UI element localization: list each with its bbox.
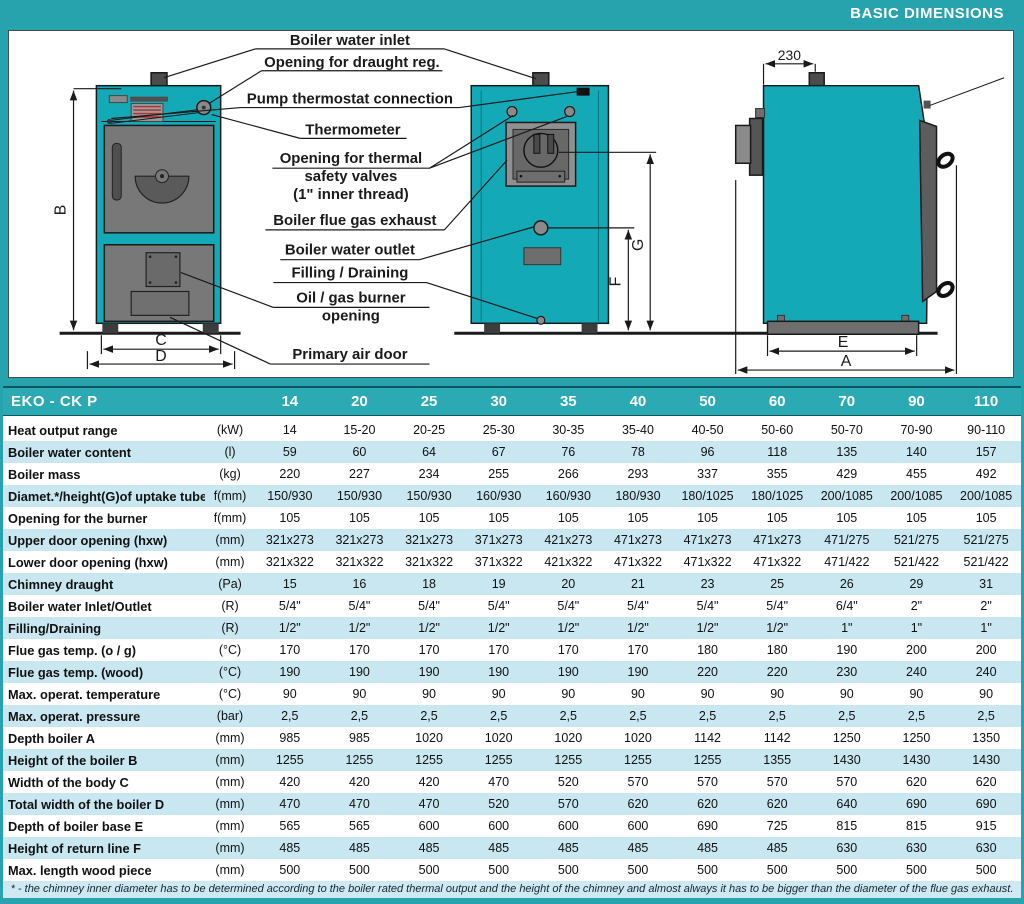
model-column-14: 14	[255, 387, 325, 416]
cell-value: 2"	[951, 595, 1021, 617]
cell-value: 1250	[882, 727, 952, 749]
front-door-edge	[920, 120, 937, 301]
cell-value: 321x322	[325, 551, 395, 573]
cell-value: 2,5	[951, 705, 1021, 727]
cell-value: 1350	[951, 727, 1021, 749]
dim-depth-A: A	[841, 353, 852, 370]
cell-value: 90-110	[951, 419, 1021, 441]
cell-value: 5/4"	[325, 595, 395, 617]
cell-value: 29	[882, 573, 952, 595]
boiler-water-outlet	[534, 221, 548, 235]
cell-value: 240	[882, 661, 952, 683]
cell-value: 59	[255, 441, 325, 463]
cell-value: 485	[255, 837, 325, 859]
model-column-60: 60	[742, 387, 812, 416]
cell-value: 1430	[951, 749, 1021, 771]
chimney-stub	[151, 73, 167, 86]
cell-value: 600	[534, 815, 604, 837]
model-name: EKO - CK P	[3, 387, 255, 416]
cell-value: 234	[394, 463, 464, 485]
cell-value: 620	[742, 793, 812, 815]
cell-value: 293	[603, 463, 673, 485]
cell-value: 190	[255, 661, 325, 683]
cell-value: 2,5	[673, 705, 743, 727]
cell-value: 1430	[812, 749, 882, 771]
spec-row: Lower door opening (hxw)(mm)321x322321x3…	[3, 551, 1021, 573]
cell-value: 180	[742, 639, 812, 661]
spec-row: Height of the boiler B(mm)12551255125512…	[3, 749, 1021, 771]
cell-value: 15-20	[325, 419, 395, 441]
flue-pipe-end	[736, 125, 751, 163]
spec-row: Filling/Draining(R)1/2"1/2"1/2"1/2"1/2"1…	[3, 617, 1021, 639]
cell-value: 18	[394, 573, 464, 595]
cell-value: 15	[255, 573, 325, 595]
spec-row: Depth boiler A(mm)9859851020102010201020…	[3, 727, 1021, 749]
page-title: BASIC DIMENSIONS	[850, 5, 1004, 22]
cell-value: 1430	[882, 749, 952, 771]
chimney-stub	[533, 73, 549, 86]
cell-value: 6/4"	[812, 595, 882, 617]
row-unit: (mm)	[205, 771, 255, 793]
cell-value: 25	[742, 573, 812, 595]
cell-value: 421x322	[534, 551, 604, 573]
spec-row: Height of return line F(mm)4854854854854…	[3, 837, 1021, 859]
row-unit: f(mm)	[205, 507, 255, 529]
cell-value: 485	[742, 837, 812, 859]
cell-value: 485	[464, 837, 534, 859]
cell-value: 50-60	[742, 419, 812, 441]
cell-value: 2,5	[325, 705, 395, 727]
cell-value: 1/2"	[325, 617, 395, 639]
row-unit: (mm)	[205, 793, 255, 815]
cell-value: 471x322	[673, 551, 743, 573]
row-unit: (°C)	[205, 661, 255, 683]
model-column-110: 110	[951, 387, 1021, 416]
cell-value: 521/422	[951, 551, 1021, 573]
cell-value: 521/275	[882, 529, 952, 551]
cell-value: 105	[534, 507, 604, 529]
row-label: Opening for the burner	[3, 507, 205, 529]
row-label: Depth boiler A	[3, 727, 205, 749]
cell-value: 485	[325, 837, 395, 859]
cell-value: 1255	[464, 749, 534, 771]
cell-value: 35-40	[603, 419, 673, 441]
cell-value: 620	[951, 771, 1021, 793]
cell-value: 21	[603, 573, 673, 595]
cell-value: 1/2"	[673, 617, 743, 639]
label-thermometer: Thermometer	[305, 122, 400, 138]
cell-value: 190	[534, 661, 604, 683]
spec-row: Opening for the burnerf(mm)1051051051051…	[3, 507, 1021, 529]
row-label: Upper door opening (hxw)	[3, 529, 205, 551]
cell-value: 725	[742, 815, 812, 837]
cell-value: 40-50	[673, 419, 743, 441]
cell-value: 1"	[882, 617, 952, 639]
cell-value: 420	[394, 771, 464, 793]
cell-value: 160/930	[534, 485, 604, 507]
cell-value: 230	[812, 661, 882, 683]
cell-value: 180	[673, 639, 743, 661]
row-unit: (bar)	[205, 705, 255, 727]
cell-value: 90	[534, 683, 604, 705]
spec-row: Depth of boiler base E(mm)56556560060060…	[3, 815, 1021, 837]
cell-value: 471/275	[812, 529, 882, 551]
cell-value: 90	[812, 683, 882, 705]
cell-value: 25-30	[464, 419, 534, 441]
cell-value: 2,5	[464, 705, 534, 727]
row-unit: (mm)	[205, 815, 255, 837]
cell-value: 421x273	[534, 529, 604, 551]
cell-value: 150/930	[255, 485, 325, 507]
cell-value: 105	[742, 507, 812, 529]
flue-pipe	[750, 118, 763, 175]
cell-value: 5/4"	[394, 595, 464, 617]
model-column-40: 40	[603, 387, 673, 416]
cell-value: 521/275	[951, 529, 1021, 551]
spec-row: Total width of the boiler D(mm)470470470…	[3, 793, 1021, 815]
cell-value: 371x322	[464, 551, 534, 573]
cell-value: 521/422	[882, 551, 952, 573]
label-burner-2: opening	[322, 308, 380, 324]
row-unit: (l)	[205, 441, 255, 463]
spec-row: Chimney draught(Pa)151618192021232526293…	[3, 573, 1021, 595]
model-column-25: 25	[394, 387, 464, 416]
label-boiler-water-inlet: Boiler water inlet	[290, 33, 410, 49]
model-column-35: 35	[534, 387, 604, 416]
spec-row: Max. operat. temperature(°C)909090909090…	[3, 683, 1021, 705]
cell-value: 1020	[394, 727, 464, 749]
cell-value: 90	[951, 683, 1021, 705]
cell-value: 2,5	[882, 705, 952, 727]
row-label: Flue gas temp. (wood)	[3, 661, 205, 683]
spec-row: Boiler water content(l)59606467767896118…	[3, 441, 1021, 463]
cell-value: 1355	[742, 749, 812, 771]
spec-row: Boiler water Inlet/Outlet(R)5/4"5/4"5/4"…	[3, 595, 1021, 617]
cell-value: 690	[951, 793, 1021, 815]
row-label: Width of the body C	[3, 771, 205, 793]
cell-value: 150/930	[394, 485, 464, 507]
cell-value: 170	[325, 639, 395, 661]
cell-value: 1142	[673, 727, 743, 749]
cell-value: 985	[255, 727, 325, 749]
cell-value: 429	[812, 463, 882, 485]
spec-row: Max. length wood piece(mm)50050050050050…	[3, 859, 1021, 881]
cell-value: 105	[325, 507, 395, 529]
cell-value: 1255	[673, 749, 743, 771]
spec-row: Boiler mass(kg)2202272342552662933373554…	[3, 463, 1021, 485]
cell-value: 220	[673, 661, 743, 683]
cell-value: 640	[812, 793, 882, 815]
cell-value: 1/2"	[255, 617, 325, 639]
cell-value: 200	[951, 639, 1021, 661]
cell-value: 200	[882, 639, 952, 661]
cell-value: 1255	[394, 749, 464, 771]
cell-value: 19	[464, 573, 534, 595]
cell-value: 1/2"	[464, 617, 534, 639]
cell-value: 337	[673, 463, 743, 485]
cell-value: 23	[673, 573, 743, 595]
cell-value: 570	[742, 771, 812, 793]
cell-value: 190	[325, 661, 395, 683]
cell-value: 321x273	[325, 529, 395, 551]
cell-value: 570	[603, 771, 673, 793]
cell-value: 2,5	[394, 705, 464, 727]
table-footnote: * - the chimney inner diameter has to be…	[3, 881, 1021, 898]
cell-value: 200/1085	[812, 485, 882, 507]
cell-value: 30-35	[534, 419, 604, 441]
cell-value: 5/4"	[464, 595, 534, 617]
cell-value: 371x273	[464, 529, 534, 551]
label-flue-exhaust: Boiler flue gas exhaust	[273, 213, 436, 229]
row-label: Max. operat. temperature	[3, 683, 205, 705]
row-unit: (mm)	[205, 551, 255, 573]
cell-value: 985	[325, 727, 395, 749]
cell-value: 420	[325, 771, 395, 793]
cell-value: 20-25	[394, 419, 464, 441]
cell-value: 90	[742, 683, 812, 705]
cell-value: 492	[951, 463, 1021, 485]
cell-value: 500	[742, 859, 812, 881]
cell-value: 190	[812, 639, 882, 661]
cell-value: 1/2"	[742, 617, 812, 639]
cell-value: 78	[603, 441, 673, 463]
cell-value: 1020	[603, 727, 673, 749]
cell-value: 2"	[882, 595, 952, 617]
cell-value: 90	[394, 683, 464, 705]
cell-value: 485	[673, 837, 743, 859]
model-column-30: 30	[464, 387, 534, 416]
label-water-outlet: Boiler water outlet	[285, 243, 415, 259]
cell-value: 471x322	[603, 551, 673, 573]
cell-value: 90	[882, 683, 952, 705]
cell-value: 255	[464, 463, 534, 485]
cell-value: 915	[951, 815, 1021, 837]
cell-value: 420	[255, 771, 325, 793]
label-thermal-safety-1: Opening for thermal	[280, 151, 422, 167]
row-label: Boiler mass	[3, 463, 205, 485]
row-label: Filling/Draining	[3, 617, 205, 639]
cell-value: 1020	[534, 727, 604, 749]
dim-height-B: B	[53, 205, 70, 216]
dim-width-D: D	[155, 348, 166, 365]
cell-value: 471x322	[742, 551, 812, 573]
cell-value: 500	[325, 859, 395, 881]
cell-value: 170	[603, 639, 673, 661]
burner-opening-plate	[146, 253, 180, 287]
cell-value: 90	[673, 683, 743, 705]
dim-base-E: E	[838, 334, 849, 351]
cell-value: 180/930	[603, 485, 673, 507]
cell-value: 815	[882, 815, 952, 837]
row-label: Height of return line F	[3, 837, 205, 859]
label-pump-thermostat: Pump thermostat connection	[247, 92, 453, 108]
cell-value: 240	[951, 661, 1021, 683]
boiler-body	[764, 86, 929, 324]
boiler-front-view	[96, 73, 220, 333]
cell-value: 26	[812, 573, 882, 595]
cell-value: 60	[325, 441, 395, 463]
cell-value: 570	[534, 793, 604, 815]
row-label: Heat output range	[3, 419, 205, 441]
label-burner-1: Oil / gas burner	[296, 290, 406, 306]
cell-value: 5/4"	[255, 595, 325, 617]
primary-air-door	[131, 291, 189, 315]
cell-value: 190	[603, 661, 673, 683]
row-label: Max. length wood piece	[3, 859, 205, 881]
row-label: Height of the boiler B	[3, 749, 205, 771]
cell-value: 690	[882, 793, 952, 815]
cell-value: 150/930	[325, 485, 395, 507]
cell-value: 690	[673, 815, 743, 837]
cell-value: 5/4"	[534, 595, 604, 617]
cell-value: 135	[812, 441, 882, 463]
cell-value: 570	[812, 771, 882, 793]
cell-value: 2,5	[255, 705, 325, 727]
cell-value: 266	[534, 463, 604, 485]
cell-value: 500	[812, 859, 882, 881]
row-label: Chimney draught	[3, 573, 205, 595]
cell-value: 90	[464, 683, 534, 705]
cell-value: 1250	[812, 727, 882, 749]
cell-value: 500	[464, 859, 534, 881]
cell-value: 1"	[812, 617, 882, 639]
cell-value: 470	[325, 793, 395, 815]
model-column-20: 20	[325, 387, 395, 416]
cell-value: 1020	[464, 727, 534, 749]
cell-value: 570	[673, 771, 743, 793]
cell-value: 471/422	[812, 551, 882, 573]
cell-value: 471x273	[742, 529, 812, 551]
cell-value: 520	[534, 771, 604, 793]
spec-row: Flue gas temp. (o / g)(°C)17017017017017…	[3, 639, 1021, 661]
cell-value: 485	[603, 837, 673, 859]
row-unit: (°C)	[205, 683, 255, 705]
cell-value: 105	[882, 507, 952, 529]
cell-value: 190	[464, 661, 534, 683]
cell-value: 105	[603, 507, 673, 529]
cell-value: 96	[673, 441, 743, 463]
filling-draining-port	[537, 316, 545, 324]
cell-value: 1/2"	[534, 617, 604, 639]
cell-value: 1142	[742, 727, 812, 749]
cell-value: 105	[812, 507, 882, 529]
model-column-70: 70	[812, 387, 882, 416]
row-label: Boiler water Inlet/Outlet	[3, 595, 205, 617]
spec-row: Flue gas temp. (wood)(°C)190190190190190…	[3, 661, 1021, 683]
cell-value: 500	[394, 859, 464, 881]
cell-value: 630	[882, 837, 952, 859]
cell-value: 105	[394, 507, 464, 529]
dim-top-230: 230	[778, 47, 801, 63]
label-primary-air-door: Primary air door	[292, 347, 407, 363]
cell-value: 470	[255, 793, 325, 815]
spec-table: EKO - CK P 14202530354050607090110 Heat …	[3, 386, 1021, 881]
cell-value: 455	[882, 463, 952, 485]
cell-value: 500	[603, 859, 673, 881]
thermal-safety-valve-opening	[565, 107, 575, 117]
boiler-side-view	[736, 73, 1004, 334]
label-thermal-safety-2: safety valves	[305, 169, 398, 185]
spec-row: Heat output range(kW)1415-2020-2525-3030…	[3, 419, 1021, 441]
cell-value: 90	[255, 683, 325, 705]
cell-value: 170	[534, 639, 604, 661]
label-draught-reg: Opening for draught reg.	[264, 55, 440, 71]
boiler-rear-view	[471, 73, 608, 333]
cell-value: 321x273	[255, 529, 325, 551]
cell-value: 14	[255, 419, 325, 441]
brand-logo	[109, 96, 127, 103]
row-label: Max. operat. pressure	[3, 705, 205, 727]
row-label: Boiler water content	[3, 441, 205, 463]
callout-labels: Boiler water inlet Opening for draught r…	[247, 33, 453, 363]
cell-value: 118	[742, 441, 812, 463]
row-unit: (R)	[205, 617, 255, 639]
cell-value: 630	[812, 837, 882, 859]
cell-value: 5/4"	[742, 595, 812, 617]
spec-table-section: EKO - CK P 14202530354050607090110 Heat …	[3, 386, 1021, 898]
spec-row: Width of the body C(mm)42042042047052057…	[3, 771, 1021, 793]
door-handle-bar	[112, 143, 121, 200]
row-unit: (°C)	[205, 639, 255, 661]
dimension-drawing-panel: Boiler water inlet Opening for draught r…	[8, 30, 1014, 378]
datasheet-page: BASIC DIMENSIONS	[0, 0, 1024, 904]
cell-value: 70-90	[882, 419, 952, 441]
row-unit: (kW)	[205, 419, 255, 441]
cell-value: 105	[464, 507, 534, 529]
dim-width-C: C	[155, 332, 166, 349]
cell-value: 227	[325, 463, 395, 485]
model-header-row: EKO - CK P 14202530354050607090110	[3, 387, 1021, 416]
cell-value: 1255	[534, 749, 604, 771]
spec-row: Upper door opening (hxw)(mm)321x273321x2…	[3, 529, 1021, 551]
row-label: Total width of the boiler D	[3, 793, 205, 815]
label-thermal-safety-3: (1" inner thread)	[293, 187, 409, 203]
cell-value: 220	[742, 661, 812, 683]
cell-value: 620	[673, 793, 743, 815]
dim-uptake-G: G	[630, 239, 647, 251]
cell-value: 2,5	[603, 705, 673, 727]
cell-value: 500	[951, 859, 1021, 881]
cell-value: 190	[394, 661, 464, 683]
row-unit: (R)	[205, 595, 255, 617]
cell-value: 600	[464, 815, 534, 837]
row-unit: f(mm)	[205, 485, 255, 507]
cell-value: 600	[394, 815, 464, 837]
cell-value: 5/4"	[673, 595, 743, 617]
row-label: Depth of boiler base E	[3, 815, 205, 837]
cell-value: 500	[534, 859, 604, 881]
boiler-body	[471, 86, 608, 324]
door-ring-handle	[936, 280, 955, 298]
cell-value: 321x322	[394, 551, 464, 573]
row-label: Diamet.*/height(G)of uptake tube	[3, 485, 205, 507]
cell-value: 471x273	[673, 529, 743, 551]
cell-value: 105	[255, 507, 325, 529]
model-column-90: 90	[882, 387, 952, 416]
cell-value: 170	[464, 639, 534, 661]
cell-value: 50-70	[812, 419, 882, 441]
dim-return-F: F	[607, 276, 624, 286]
cell-value: 321x322	[255, 551, 325, 573]
cell-value: 157	[951, 441, 1021, 463]
boiler-drawing: Boiler water inlet Opening for draught r…	[9, 31, 1013, 377]
cell-value: 76	[534, 441, 604, 463]
cell-value: 470	[464, 771, 534, 793]
cell-value: 1/2"	[394, 617, 464, 639]
cell-value: 815	[812, 815, 882, 837]
cell-value: 180/1025	[742, 485, 812, 507]
cell-value: 630	[951, 837, 1021, 859]
